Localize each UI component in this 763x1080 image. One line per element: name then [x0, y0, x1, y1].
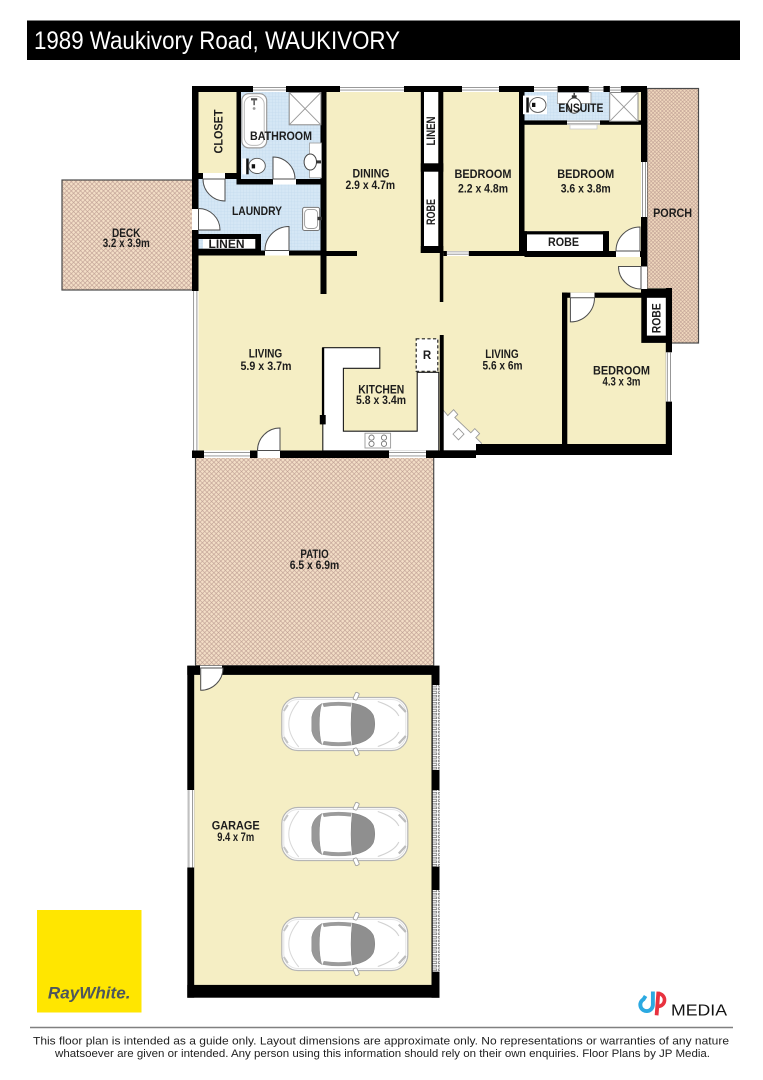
- svg-text:2.2 x 4.8m: 2.2 x 4.8m: [458, 181, 508, 195]
- svg-text:9.4 x 7m: 9.4 x 7m: [217, 830, 254, 844]
- svg-text:CLOSET: CLOSET: [214, 110, 226, 154]
- svg-text:1989 Waukivory Road, WAUKIVORY: 1989 Waukivory Road, WAUKIVORY: [34, 27, 400, 55]
- svg-text:BATHROOM: BATHROOM: [250, 131, 312, 143]
- svg-text:5.6 x 6m: 5.6 x 6m: [483, 359, 523, 373]
- svg-text:6.5 x 6.9m: 6.5 x 6.9m: [290, 558, 340, 572]
- svg-text:This floor plan is intended as: This floor plan is intended as a guide o…: [33, 1036, 729, 1048]
- svg-text:LINEN: LINEN: [209, 239, 245, 251]
- svg-text:ROBE: ROBE: [651, 303, 663, 333]
- svg-text:5.8 x 3.4m: 5.8 x 3.4m: [356, 393, 406, 407]
- svg-text:4.3 x 3m: 4.3 x 3m: [603, 374, 641, 388]
- svg-text:RayWhite.: RayWhite.: [48, 985, 131, 1003]
- svg-text:ROBE: ROBE: [548, 237, 579, 249]
- svg-text:LINEN: LINEN: [426, 117, 438, 146]
- svg-text:2.9 x 4.7m: 2.9 x 4.7m: [346, 178, 396, 192]
- svg-text:ROBE: ROBE: [426, 199, 438, 225]
- svg-text:MEDIA: MEDIA: [671, 1003, 728, 1020]
- svg-text:LAUNDRY: LAUNDRY: [232, 206, 282, 218]
- svg-text:3.2 x 3.9m: 3.2 x 3.9m: [103, 236, 150, 250]
- svg-text:BEDROOM: BEDROOM: [557, 169, 614, 181]
- svg-text:whatsoever are given or intend: whatsoever are given or intended. Any pe…: [54, 1048, 710, 1060]
- svg-text:BEDROOM: BEDROOM: [455, 169, 512, 181]
- svg-text:R: R: [423, 350, 432, 362]
- svg-text:PORCH: PORCH: [653, 208, 692, 220]
- svg-text:5.9 x 3.7m: 5.9 x 3.7m: [241, 359, 292, 373]
- svg-text:ENSUITE: ENSUITE: [558, 103, 603, 115]
- svg-text:3.6 x 3.8m: 3.6 x 3.8m: [561, 181, 611, 195]
